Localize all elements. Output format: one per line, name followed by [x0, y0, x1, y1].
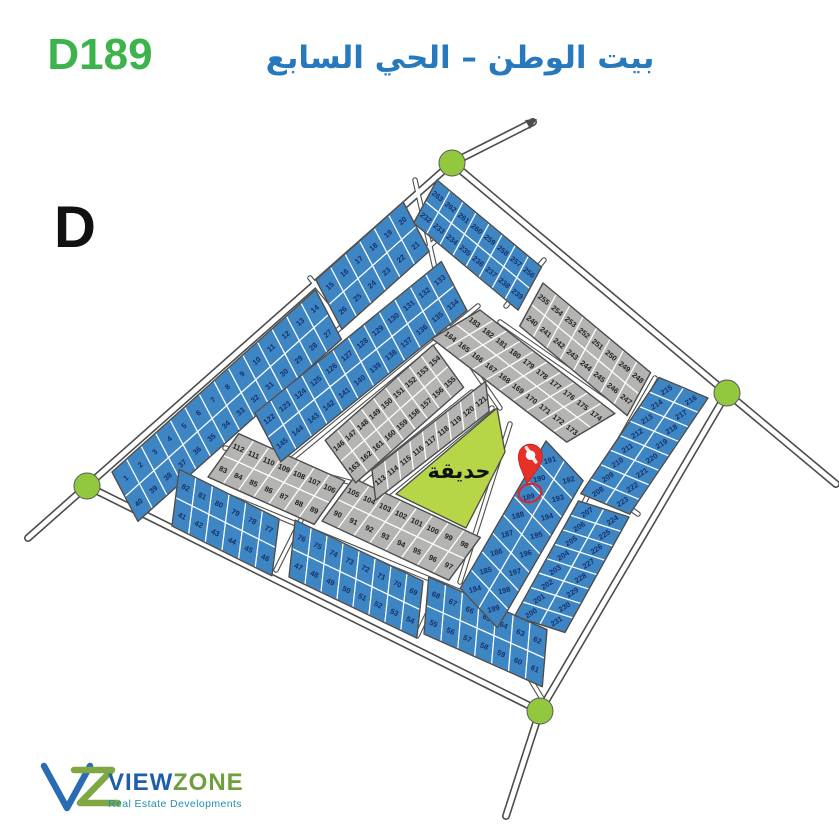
roundabout: [439, 150, 465, 176]
map-flyer: حديقة12345678910111213144039383736353433…: [0, 0, 839, 839]
park-label: حديقة: [428, 459, 491, 483]
page-title: بيت الوطن – الحي السابع: [266, 40, 655, 76]
logo-tagline: Real Estate Developments: [108, 798, 242, 810]
plot-map: حديقة12345678910111213144039383736353433…: [28, 119, 836, 816]
roundabout: [714, 380, 740, 406]
roundabout: [74, 473, 100, 499]
roundabout: [527, 698, 553, 724]
plot-code-label: D189: [47, 30, 152, 79]
logo-zone-text: ZONE: [173, 769, 244, 796]
logo-view-text: VIEW: [108, 769, 173, 796]
zone-letter: D: [54, 195, 96, 260]
viewzone-logo: VIEW ZONE Real Estate Developments: [44, 766, 244, 810]
